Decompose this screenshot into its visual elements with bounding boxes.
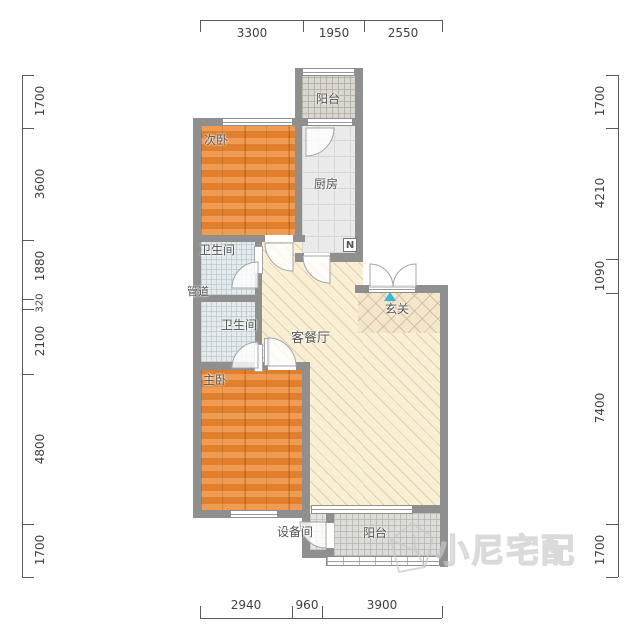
dimension-tick bbox=[606, 577, 618, 578]
room-label-balcony-bottom: 阳台 bbox=[363, 526, 387, 540]
dimension-tick bbox=[200, 20, 201, 32]
kitchen-appliance-symbol: N bbox=[343, 238, 357, 252]
window-balcony-top bbox=[302, 68, 355, 76]
dimension-tick bbox=[292, 606, 293, 618]
dimension-tick bbox=[442, 606, 443, 618]
door-opening bbox=[268, 362, 296, 370]
dimension-tick bbox=[322, 606, 323, 618]
dimension-line-left bbox=[22, 75, 23, 577]
dimension-top-3: 2550 bbox=[388, 26, 419, 40]
door-leaf-bathroom-bottom bbox=[254, 344, 263, 372]
dimension-top-1: 3300 bbox=[237, 26, 268, 40]
kitchen-appliance-glyph: N bbox=[346, 240, 354, 251]
dimension-left-6: 4800 bbox=[33, 434, 47, 465]
dimension-tick bbox=[606, 293, 618, 294]
dimension-line-bottom bbox=[200, 618, 442, 619]
dimension-right-3: 1090 bbox=[593, 261, 607, 292]
dimension-tick bbox=[22, 309, 34, 310]
room-label-pipe-duct: 管道 bbox=[187, 285, 209, 299]
dimension-bottom-1: 2940 bbox=[231, 598, 262, 612]
room-label-living-dining: 客餐厅 bbox=[291, 332, 330, 346]
window-living-balcony bbox=[311, 505, 413, 514]
room-label-kitchen: 厨房 bbox=[314, 177, 338, 191]
dimension-top-2: 1950 bbox=[319, 26, 350, 40]
window-kitchen-balcony bbox=[307, 118, 353, 126]
room-label-master-bedroom: 主卧 bbox=[203, 373, 227, 387]
wall bbox=[295, 118, 302, 242]
dimension-line-top bbox=[200, 20, 442, 21]
room-label-secondary-bedroom: 次卧 bbox=[204, 133, 228, 147]
room-label-equipment-room: 设备间 bbox=[277, 525, 313, 539]
door-leaf-master-bedroom bbox=[264, 338, 270, 366]
wall bbox=[440, 285, 448, 567]
dimension-tick bbox=[22, 240, 34, 241]
dimension-tick bbox=[22, 75, 34, 76]
dimension-line-right bbox=[618, 75, 619, 577]
dimension-tick bbox=[606, 524, 618, 525]
door-opening bbox=[265, 235, 293, 242]
door-leaf-bathroom-top bbox=[254, 246, 263, 274]
dimension-bottom-3: 3900 bbox=[367, 598, 398, 612]
door-opening bbox=[304, 253, 330, 262]
entrance-arrow-icon bbox=[384, 292, 396, 301]
dimension-tick bbox=[22, 299, 34, 300]
dimension-tick bbox=[22, 577, 34, 578]
dimension-left-2: 3600 bbox=[33, 169, 47, 200]
dimension-left-4: 320 bbox=[35, 293, 46, 312]
dimension-tick bbox=[606, 75, 618, 76]
wall bbox=[413, 505, 440, 513]
dimension-right-1: 1700 bbox=[593, 86, 607, 117]
dimension-tick bbox=[22, 374, 34, 375]
balcony-railing bbox=[326, 556, 440, 566]
wall bbox=[193, 118, 201, 518]
wall bbox=[326, 513, 334, 523]
dimension-right-2: 4210 bbox=[593, 178, 607, 209]
dimension-tick bbox=[606, 259, 618, 260]
room-label-bathroom-bottom: 卫生间 bbox=[221, 318, 257, 332]
room-label-entrance: 玄关 bbox=[385, 302, 409, 316]
dimension-tick bbox=[22, 524, 34, 525]
dimension-left-1: 1700 bbox=[33, 86, 47, 117]
dimension-tick bbox=[442, 20, 443, 32]
dimension-tick bbox=[364, 20, 365, 32]
dimension-tick bbox=[303, 20, 304, 32]
dimension-tick bbox=[200, 606, 201, 618]
master-bedroom-floor bbox=[201, 370, 302, 510]
dimension-bottom-2: 960 bbox=[296, 598, 319, 612]
window-master-bedroom bbox=[230, 510, 278, 518]
wall bbox=[355, 68, 363, 256]
room-label-bathroom-top: 卫生间 bbox=[199, 243, 235, 257]
dimension-left-3: 1880 bbox=[33, 251, 47, 282]
dimension-left-7: 1700 bbox=[33, 535, 47, 566]
room-label-balcony-top: 阳台 bbox=[316, 92, 340, 106]
dimension-left-5: 2100 bbox=[33, 326, 47, 357]
bathroom-bottom-floor bbox=[201, 302, 255, 362]
dimension-right-4: 7400 bbox=[593, 393, 607, 424]
watermark-text: 小尼宅配 bbox=[436, 524, 576, 572]
dimension-tick bbox=[22, 128, 34, 129]
window-secondary-bedroom bbox=[222, 118, 293, 126]
door-opening bbox=[326, 523, 334, 548]
dimension-right-5: 1700 bbox=[593, 535, 607, 566]
floorplan-canvas: N 次卧 阳台 厨房 卫生间 管道 卫生间 客餐厅 玄关 主卧 设备间 阳台 3… bbox=[0, 0, 640, 640]
dimension-tick bbox=[606, 128, 618, 129]
